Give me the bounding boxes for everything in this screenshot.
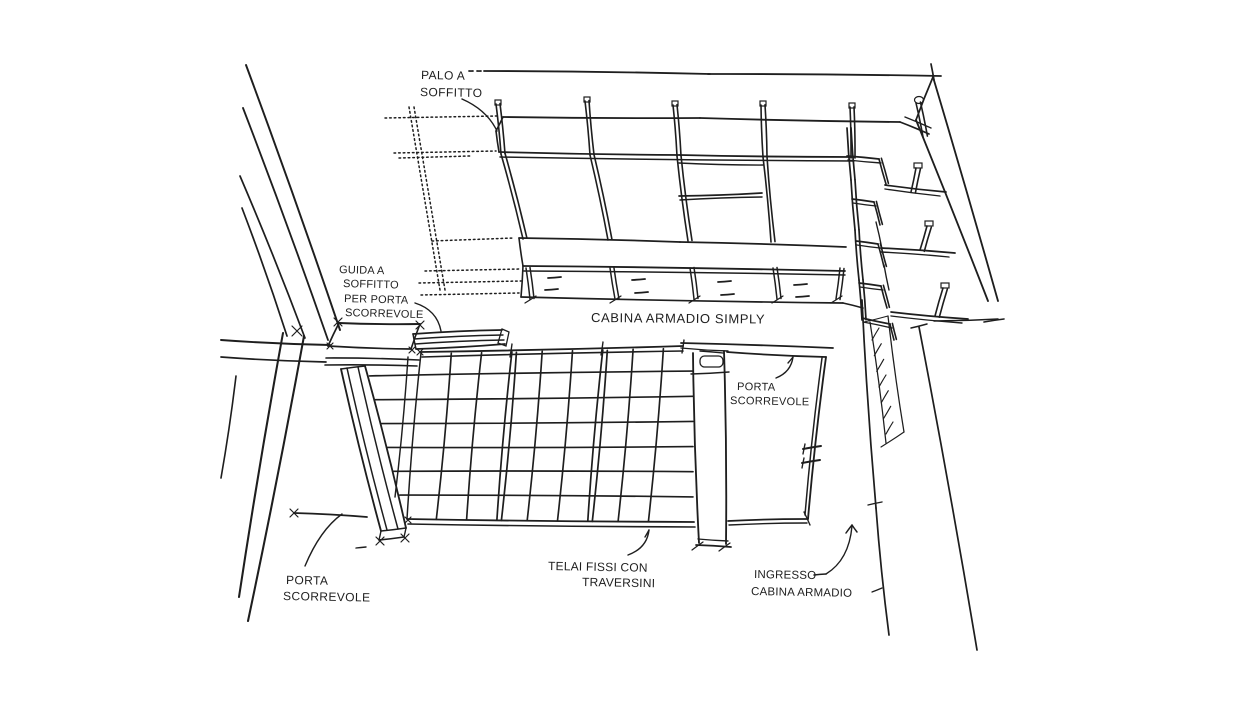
svg-text:PER PORTA: PER PORTA [344, 293, 409, 307]
svg-text:GUIDA A: GUIDA A [339, 264, 385, 277]
svg-text:SOFFITTO: SOFFITTO [343, 278, 399, 291]
svg-text:SOFFITTO: SOFFITTO [420, 85, 483, 100]
svg-text:SCORREVOLE: SCORREVOLE [730, 395, 810, 408]
svg-text:PORTA: PORTA [737, 381, 776, 394]
svg-text:CABINA ARMADIO SIMPLY: CABINA ARMADIO SIMPLY [591, 310, 765, 327]
svg-text:TRAVERSINI: TRAVERSINI [582, 575, 655, 590]
svg-text:PORTA: PORTA [286, 573, 328, 588]
svg-text:SCORREVOLE: SCORREVOLE [283, 589, 371, 605]
svg-text:PALO A: PALO A [421, 68, 465, 83]
svg-text:CABINA ARMADIO: CABINA ARMADIO [751, 586, 852, 600]
svg-text:INGRESSO: INGRESSO [754, 569, 817, 582]
svg-text:TELAI FISSI CON: TELAI FISSI CON [548, 559, 648, 575]
svg-text:SCORREVOLE: SCORREVOLE [345, 307, 424, 321]
